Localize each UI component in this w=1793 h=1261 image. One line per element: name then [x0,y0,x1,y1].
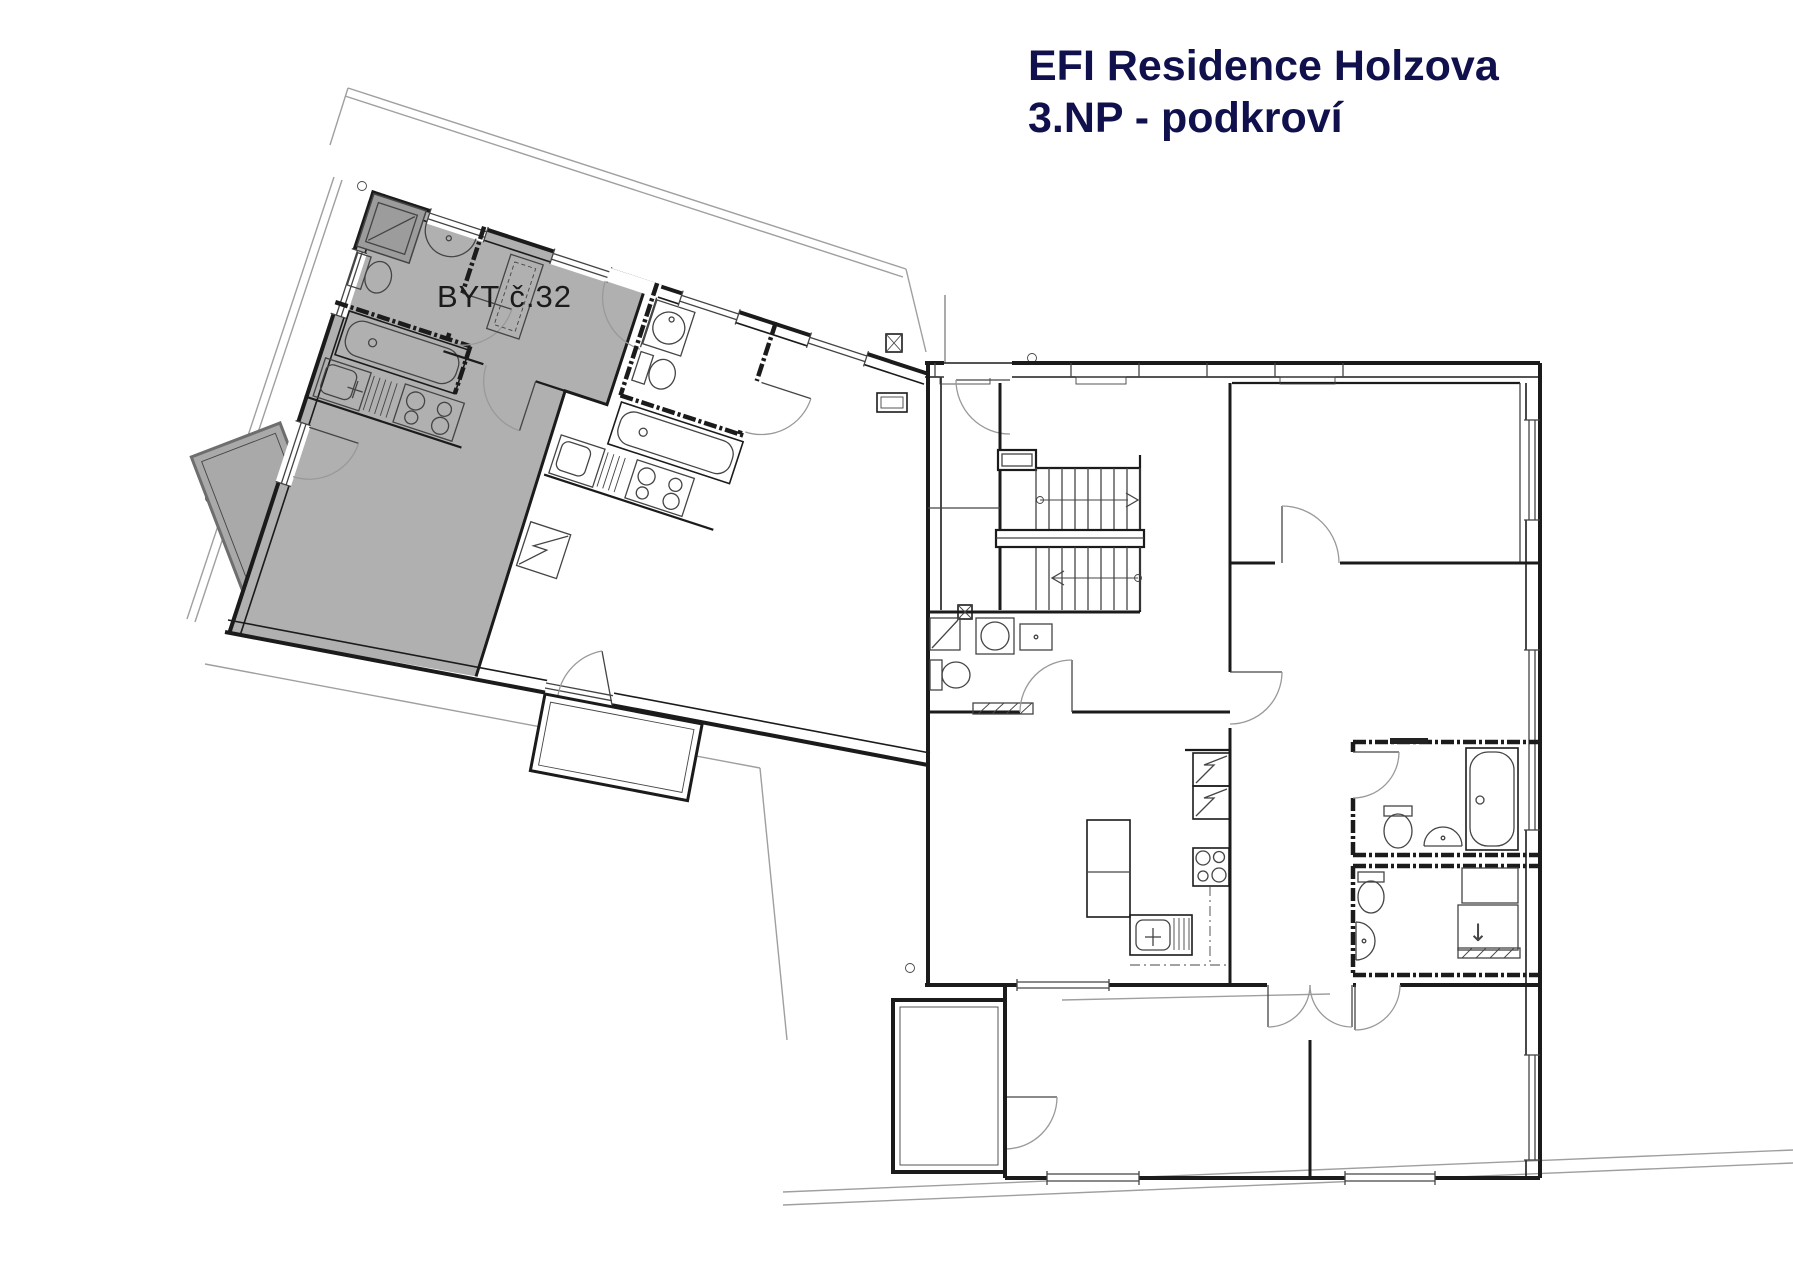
bathroom-2: ↓ [1353,866,1540,975]
page-title-line2: 3.NP - podkroví [1028,94,1345,142]
bottom-rooms [1005,985,1435,1185]
central-wall [1230,383,1282,985]
upper-right-room-wall [1230,506,1540,563]
washbasin-icon [976,618,1014,654]
floor-plan-page: ↓ [0,0,1793,1261]
wardrobe-icon [1193,753,1230,819]
bathtub-icon [1466,748,1518,850]
wc-room [928,605,1230,714]
block-balcony [893,1000,1005,1172]
unit2-balcony [530,694,702,801]
block-exterior-walls [925,363,1540,1178]
shower-arrow-glyph: ↓ [1468,919,1488,947]
unit32-label: BYT č.32 [437,279,572,314]
unit2-wardrobe [516,522,570,579]
floor-plan-drawing: ↓ [0,0,1793,1261]
block-right-windows [1520,383,1540,1160]
unit2-bathtub [608,402,743,484]
page-title-line1: EFI Residence Holzova [1028,42,1500,90]
stairwell [928,383,1144,612]
toilet-icon [930,660,942,690]
block-kitchen [1087,750,1230,965]
bathroom-1 [1353,738,1540,866]
